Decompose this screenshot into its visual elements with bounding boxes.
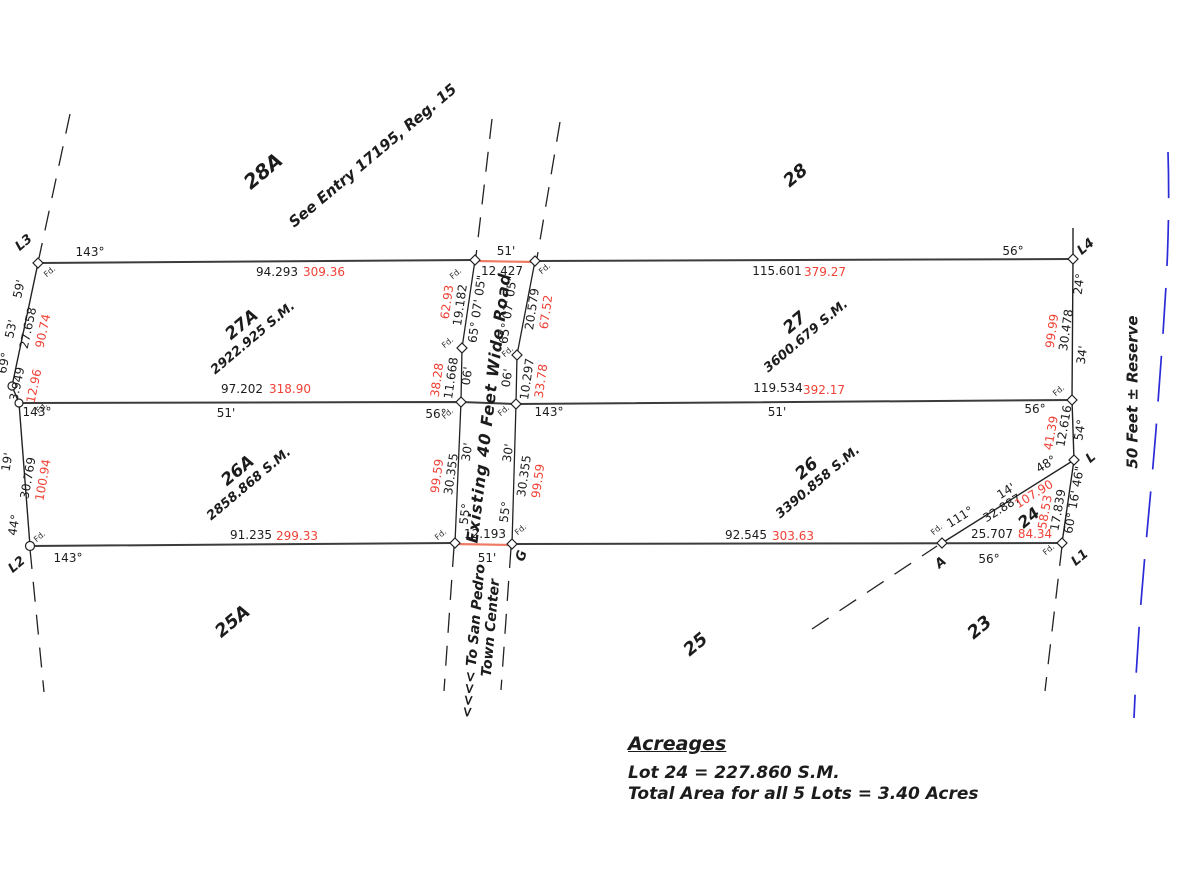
bearing-label: 143° <box>76 246 105 258</box>
bearing-label: 143° <box>54 552 83 564</box>
distance-label: 94.293 <box>256 266 298 278</box>
bearing-label: 143° <box>535 406 564 418</box>
acreages-title: Acreages <box>628 733 726 755</box>
bearing-label: 56° <box>978 553 999 565</box>
distance-label: 97.202 <box>221 383 263 395</box>
tick-label: 34' <box>1075 345 1089 365</box>
acreages-lot24: Lot 24 = 227.860 S.M. <box>628 763 840 783</box>
distance-label: 115.601 <box>752 265 802 277</box>
tick-label: 53' <box>3 319 19 340</box>
distance-label-red: 309.36 <box>303 266 345 278</box>
distance-label-red: 379.27 <box>804 266 846 278</box>
bearing-label: 56° <box>425 408 446 420</box>
distance-label: 119.534 <box>753 382 803 394</box>
tick-label: 19' <box>0 452 15 472</box>
bearing-label: 44° <box>6 513 22 536</box>
tick-label: 59' <box>11 279 27 300</box>
bearing-label: 56° <box>1024 403 1045 415</box>
survey-plat-map: L3 L2 L4 L1 L G A Fd. Fd. Fd. Fd. Fd. Fd… <box>0 0 1200 890</box>
distance-label-red: 299.33 <box>276 530 318 542</box>
bearing-label: 56° <box>1002 245 1023 257</box>
bearing-label: 55° <box>458 503 473 526</box>
distance-label: 12.193 <box>464 528 506 540</box>
tick-label: 06' <box>460 366 474 386</box>
tick-label: 51' <box>478 552 497 564</box>
distance-label-red: 303.63 <box>772 530 814 542</box>
tick-label: 30' <box>460 442 474 462</box>
bearing-label: 54° <box>1072 418 1088 441</box>
reserve-label: 50 Feet ± Reserve <box>1126 315 1141 468</box>
plat-lines-layer <box>0 0 1200 890</box>
distance-label-red: 392.17 <box>803 384 845 396</box>
acreages-total: Total Area for all 5 Lots = 3.40 Acres <box>628 784 979 804</box>
tick-label: 51' <box>217 407 236 419</box>
tick-label: 30' <box>501 443 515 463</box>
distance-label: 91.235 <box>230 529 272 541</box>
bearing-label: 55° <box>498 501 513 524</box>
bearing-label: 24° <box>1072 273 1087 296</box>
distance-label-red: 318.90 <box>269 383 311 395</box>
tick-label: 51' <box>497 245 516 257</box>
distance-label: 92.545 <box>725 529 767 541</box>
bearing-label: 143° <box>23 406 52 418</box>
tick-label: 51' <box>768 406 787 418</box>
distance-label: 25.707 <box>971 528 1013 540</box>
